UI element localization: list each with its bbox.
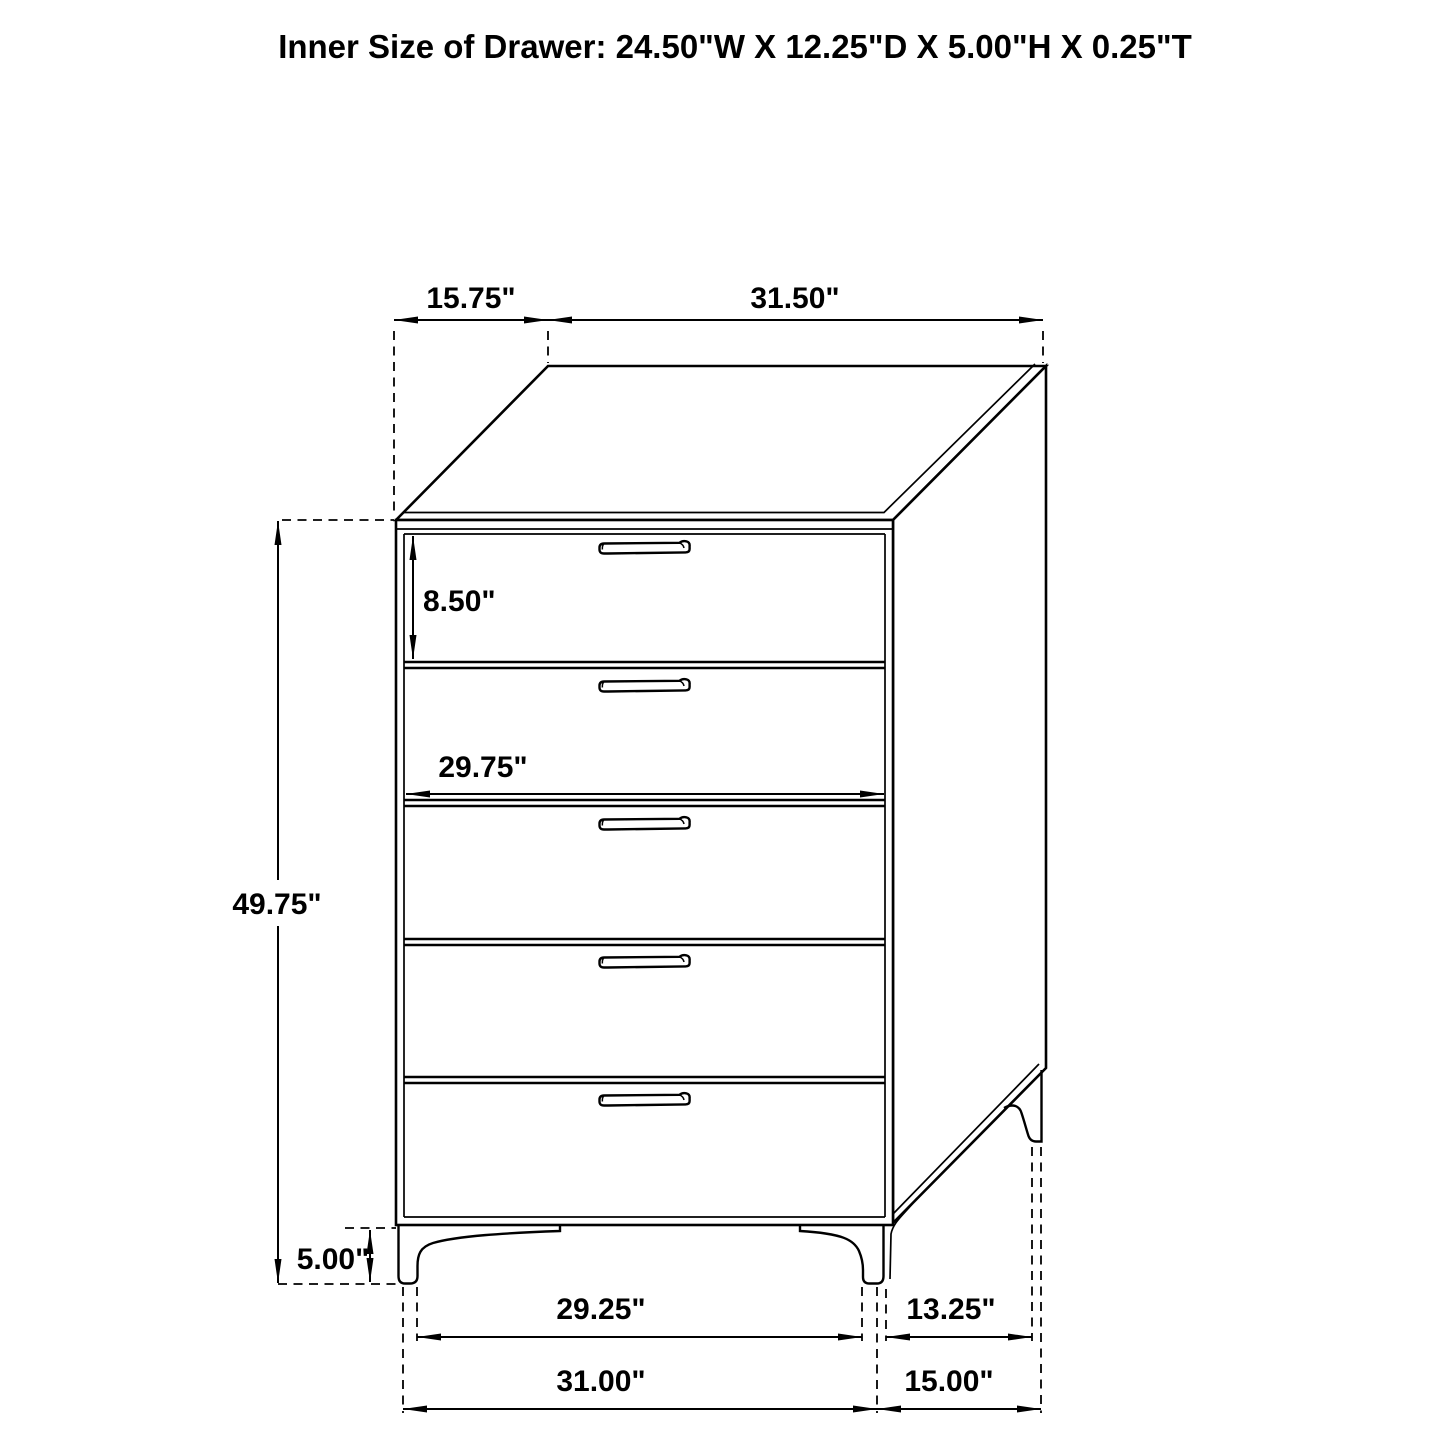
drawer-4-handle bbox=[600, 955, 690, 967]
drawer-3-handle bbox=[600, 817, 690, 829]
dim-label-leg-height: 5.00" bbox=[297, 1243, 370, 1276]
dim-side-leg-spacing: 13.25" bbox=[886, 1293, 1032, 1337]
dim-overall-height: 49.75" bbox=[232, 520, 394, 1283]
dim-overall-depth: 15.00" bbox=[877, 1365, 1041, 1409]
dim-label-overall-depth: 15.00" bbox=[904, 1365, 993, 1398]
dim-label-overall-width: 31.00" bbox=[556, 1365, 645, 1398]
diagram-title: Inner Size of Drawer: 24.50"W X 12.25"D … bbox=[278, 28, 1192, 65]
dim-label-top-depth: 15.75" bbox=[426, 282, 515, 315]
dim-leg-height: 5.00" bbox=[278, 1228, 396, 1284]
dim-front-leg-spacing: 29.25" bbox=[417, 1293, 862, 1337]
drawer-1-handle bbox=[600, 541, 690, 553]
dim-label-overall-height: 49.75" bbox=[232, 888, 321, 921]
drawer-2-handle bbox=[600, 679, 690, 691]
front-right-leg bbox=[800, 1225, 884, 1284]
diagram-canvas: 15.75" 31.50" 8.50" 29.75" 49.75" 5.00" bbox=[0, 0, 1445, 1445]
cabinet bbox=[396, 364, 1046, 1284]
dim-label-drawer-height: 8.50" bbox=[423, 585, 496, 618]
dim-top-width: 31.50" bbox=[548, 282, 1043, 363]
dim-label-top-width: 31.50" bbox=[750, 282, 839, 315]
drawer-5-handle bbox=[600, 1093, 690, 1105]
dim-label-drawer-inner-width: 29.75" bbox=[438, 751, 527, 784]
dim-overall-width: 31.00" bbox=[403, 1365, 877, 1409]
furniture-dimension-diagram: 15.75" 31.50" 8.50" 29.75" 49.75" 5.00" bbox=[0, 0, 1445, 1445]
cabinet-front-face bbox=[396, 520, 893, 1225]
front-left-leg bbox=[399, 1225, 561, 1284]
dim-label-side-leg-spacing: 13.25" bbox=[906, 1293, 995, 1326]
dim-label-front-leg-spacing: 29.25" bbox=[556, 1293, 645, 1326]
